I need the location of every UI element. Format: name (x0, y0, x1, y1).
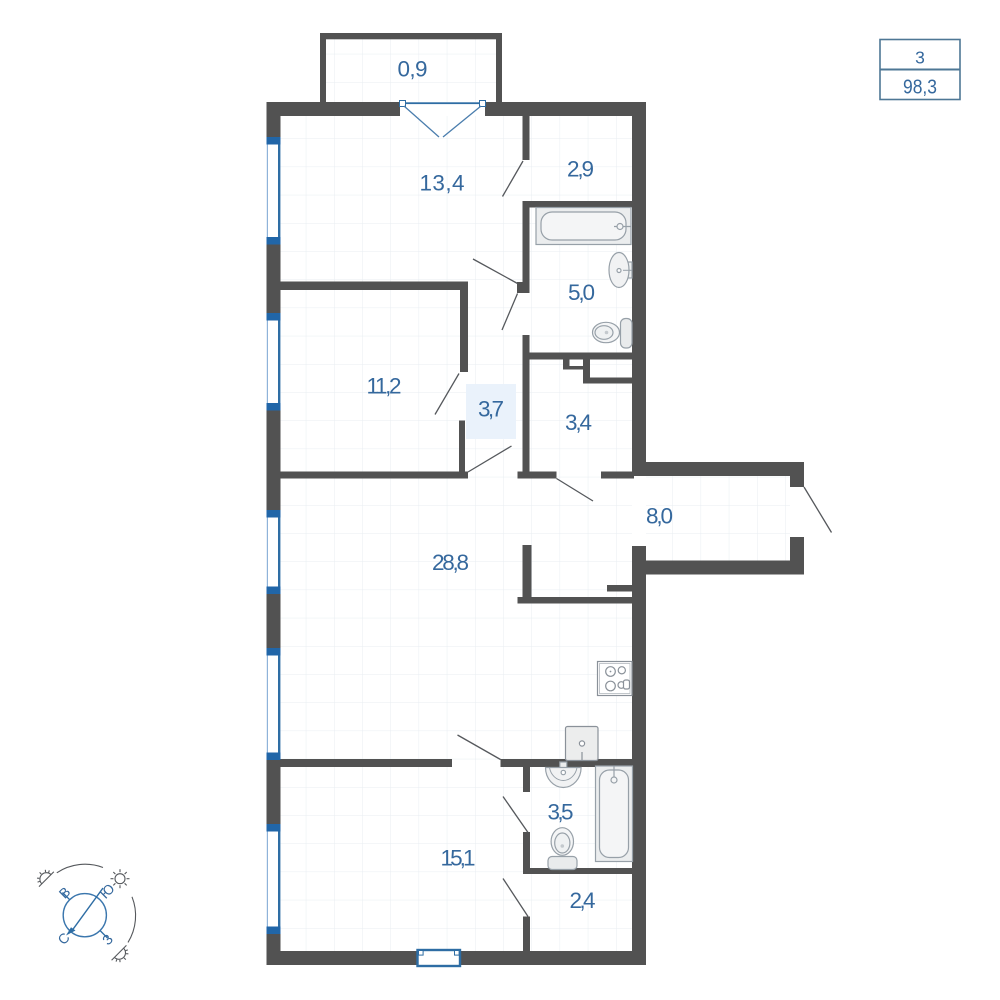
svg-text:0,9: 0,9 (398, 57, 428, 82)
svg-text:5,0: 5,0 (568, 280, 595, 305)
svg-text:3: 3 (915, 48, 925, 68)
svg-text:13,4: 13,4 (420, 171, 465, 196)
svg-text:3,7: 3,7 (478, 397, 504, 422)
svg-text:2,4: 2,4 (570, 888, 596, 913)
svg-text:11,2: 11,2 (367, 374, 402, 399)
svg-text:2,9: 2,9 (567, 157, 594, 182)
svg-text:15,1: 15,1 (441, 846, 476, 871)
svg-text:98,3: 98,3 (903, 77, 937, 99)
svg-text:8,0: 8,0 (646, 504, 673, 529)
svg-text:28,8: 28,8 (432, 550, 469, 575)
svg-text:3,5: 3,5 (548, 800, 574, 825)
svg-text:3,4: 3,4 (565, 410, 592, 435)
